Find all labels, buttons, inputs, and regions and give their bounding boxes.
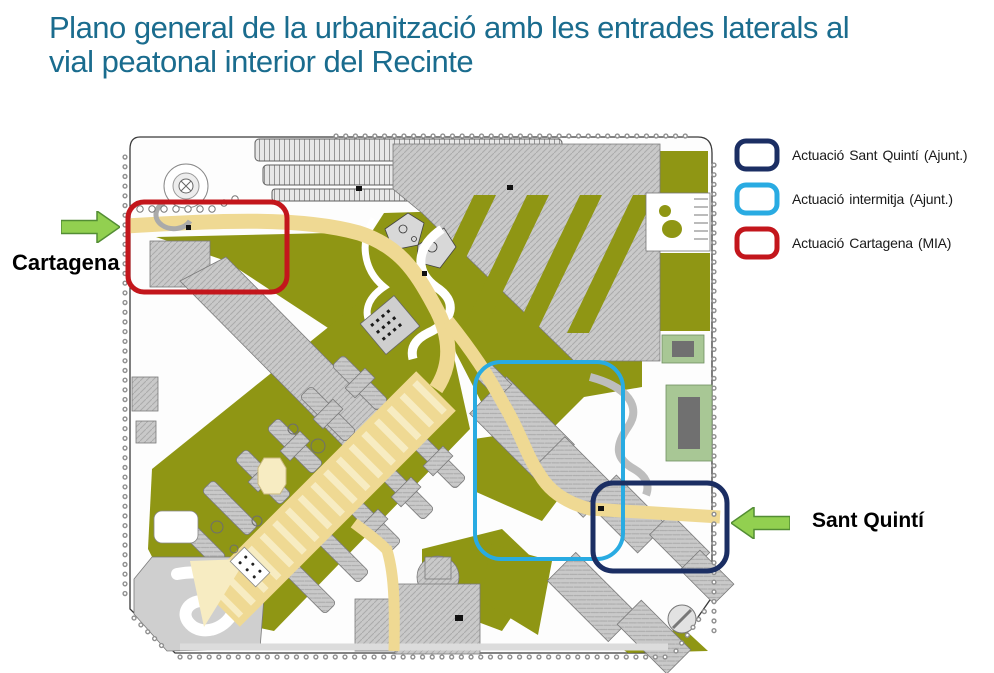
- site-plan-map: [122, 129, 732, 663]
- legend-item-cartagena: Actuació Cartagena (MIA): [734, 226, 994, 260]
- page-title-line2: vial peatonal interior del Recinte: [49, 45, 969, 79]
- legend-swatch-navy: [734, 138, 780, 172]
- page-title: Plano general de la urbanització amb les…: [49, 11, 969, 79]
- legend-swatch-red: [734, 226, 780, 260]
- legend-label: Actuació Sant Quintí (Ajunt.): [792, 147, 967, 163]
- legend-label: Actuació Cartagena (MIA): [792, 235, 951, 251]
- slide: Plano general de la urbanització amb les…: [0, 0, 994, 673]
- legend: Actuació Sant Quintí (Ajunt.) Actuació i…: [734, 138, 994, 270]
- arrow-right-icon: [61, 211, 120, 243]
- page-title-line1: Plano general de la urbanització amb les…: [49, 11, 969, 45]
- sant-quinti-label: Sant Quintí: [812, 509, 924, 533]
- legend-swatch-cyan: [734, 182, 780, 216]
- arrow-left-icon: [731, 507, 790, 539]
- legend-item-sant-quinti: Actuació Sant Quintí (Ajunt.): [734, 138, 994, 172]
- plaza-octagon: [258, 458, 286, 494]
- legend-item-intermitja: Actuació intermitja (Ajunt.): [734, 182, 994, 216]
- cartagena-label: Cartagena: [12, 250, 120, 276]
- legend-label: Actuació intermitja (Ajunt.): [792, 191, 953, 207]
